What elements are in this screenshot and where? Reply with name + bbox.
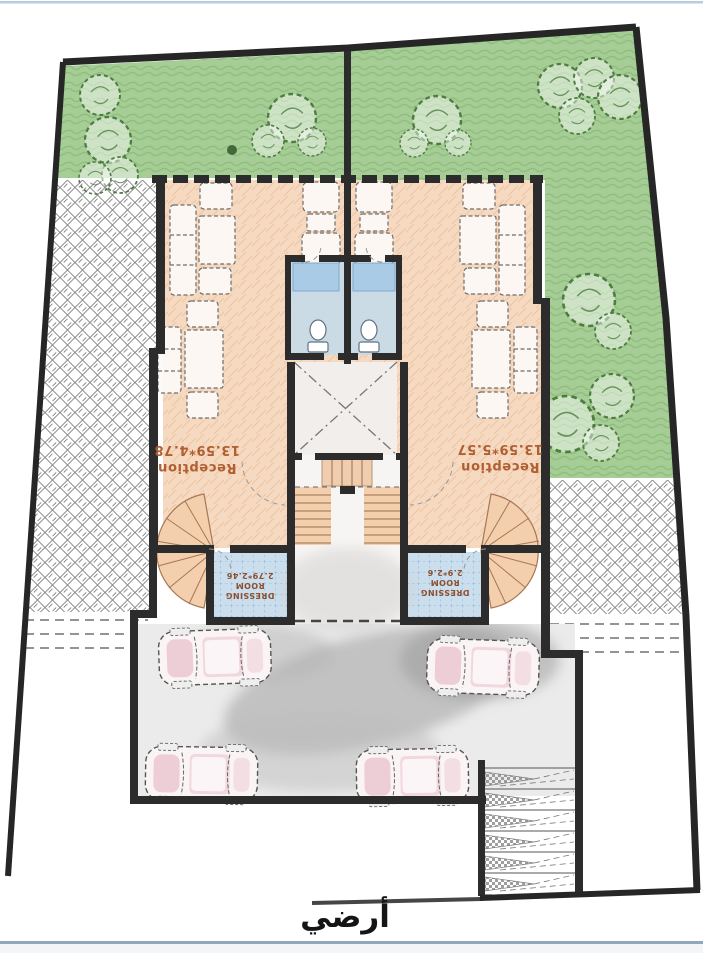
room-name: ROOM	[430, 578, 459, 587]
wall	[400, 617, 489, 625]
floor-plan-scan: Reception 13.59*4.78 Reception 13.59*5.5…	[0, 0, 703, 953]
boundary-bottom	[480, 890, 700, 898]
wall	[396, 255, 402, 360]
room-name: ROOM	[235, 581, 264, 590]
room-dims: 2.79*2.46	[226, 571, 273, 580]
stair-flight-right	[364, 487, 400, 545]
chairs-center-right	[355, 182, 393, 265]
center-party-wall	[344, 48, 351, 364]
paving-right	[545, 480, 685, 614]
wall	[481, 545, 489, 625]
stair-flight-left	[295, 487, 331, 545]
wall	[130, 610, 138, 804]
wall	[315, 453, 383, 460]
toilet-icon	[310, 320, 326, 340]
wall	[533, 176, 542, 304]
wall	[487, 545, 550, 553]
sidewalk-left	[25, 620, 148, 648]
wall	[541, 298, 550, 556]
car	[426, 635, 540, 699]
hall-shading	[281, 548, 413, 632]
toilet-tank	[359, 342, 379, 352]
shrub-icon	[227, 145, 237, 155]
wall	[401, 545, 466, 553]
scan-line-top	[0, 1, 703, 4]
wall	[338, 353, 358, 360]
scan-line-bottom	[0, 941, 703, 944]
wall	[287, 453, 302, 460]
wall	[149, 545, 208, 553]
room-name: Reception	[158, 460, 237, 475]
toilet-tank	[308, 342, 328, 352]
wall	[206, 617, 295, 625]
wall	[287, 362, 295, 624]
wall	[340, 486, 355, 494]
wall	[230, 545, 294, 553]
wall	[285, 255, 291, 360]
wall	[149, 548, 157, 614]
scan-edge	[0, 944, 703, 953]
room-name: DRESSING	[226, 591, 275, 600]
ramp-wall	[478, 760, 485, 896]
wc-counter-left	[293, 263, 339, 291]
wall	[575, 657, 583, 896]
chairs-center-left	[302, 182, 340, 265]
wall	[396, 453, 408, 460]
floor-title: أرضي	[300, 896, 390, 935]
paving-left	[26, 180, 163, 612]
car	[158, 625, 272, 689]
wall	[156, 176, 165, 354]
room-name: DRESSING	[421, 588, 470, 597]
room-dims: 13.59*5.57	[457, 441, 543, 456]
car	[145, 743, 258, 805]
wc-counter-right	[353, 263, 395, 291]
toilet-icon	[361, 320, 377, 340]
room-dims: 13.59*4.78	[154, 442, 240, 457]
wall	[541, 548, 550, 658]
floor-plan-drawing: Reception 13.59*4.78 Reception 13.59*5.5…	[0, 0, 703, 953]
entry-steps	[322, 458, 372, 486]
room-dims: 2.9*2.6	[427, 568, 462, 577]
wall	[130, 796, 486, 804]
wall	[319, 255, 371, 262]
wall	[541, 650, 583, 658]
wall	[400, 362, 408, 624]
room-name: Reception	[461, 459, 540, 474]
wall	[206, 545, 214, 625]
